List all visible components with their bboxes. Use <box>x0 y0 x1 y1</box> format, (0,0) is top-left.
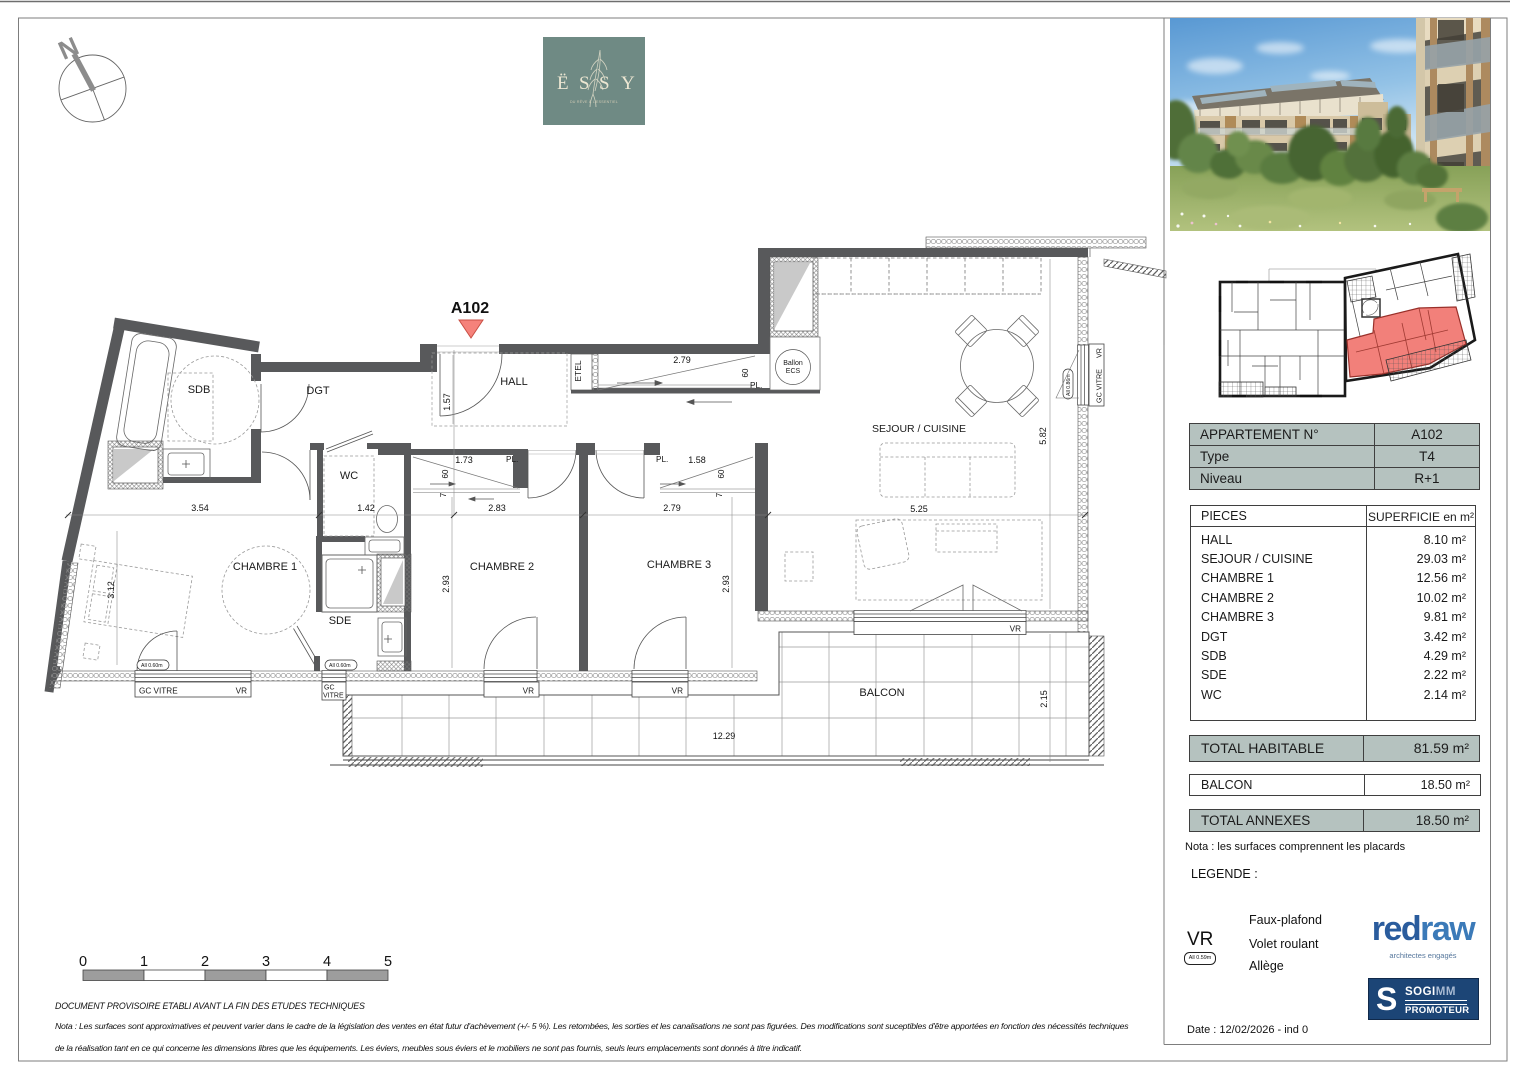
svg-text:5.82: 5.82 <box>1038 427 1048 445</box>
svg-text:SDE: SDE <box>329 615 352 627</box>
svg-text:WC: WC <box>340 470 358 482</box>
svg-text:0: 0 <box>79 954 87 970</box>
svg-text:4: 4 <box>323 954 331 970</box>
svg-text:All 0.60m: All 0.60m <box>329 663 351 669</box>
svg-text:HALL: HALL <box>500 376 528 388</box>
svg-text:Ë: Ë <box>557 73 569 94</box>
svg-text:2.93: 2.93 <box>721 575 731 593</box>
svg-text:DU RÊVE À L'ESSENTIEL: DU RÊVE À L'ESSENTIEL <box>570 99 618 104</box>
svg-text:2.93: 2.93 <box>441 575 451 593</box>
svg-text:60: 60 <box>717 469 726 478</box>
svg-text:60: 60 <box>741 368 750 377</box>
svg-text:SEJOUR / CUISINE: SEJOUR / CUISINE <box>872 423 966 435</box>
svg-text:3: 3 <box>262 954 270 970</box>
svg-text:All 0.86m: All 0.86m <box>1066 374 1072 396</box>
svg-text:1.57: 1.57 <box>442 393 452 411</box>
svg-text:PL.: PL. <box>750 381 762 390</box>
svg-text:1.42: 1.42 <box>357 503 375 513</box>
svg-text:5: 5 <box>384 954 392 970</box>
svg-text:GC VITRE: GC VITRE <box>1095 369 1104 403</box>
svg-text:3.54: 3.54 <box>191 503 209 513</box>
svg-text:S: S <box>599 73 610 94</box>
svg-text:CHAMBRE 2: CHAMBRE 2 <box>470 561 534 573</box>
svg-text:CHAMBRE 1: CHAMBRE 1 <box>233 561 297 573</box>
svg-text:GC VITRE: GC VITRE <box>139 687 178 696</box>
svg-text:A102: A102 <box>451 300 489 317</box>
svg-text:5.25: 5.25 <box>910 504 928 514</box>
svg-text:All 0.60m: All 0.60m <box>141 663 163 669</box>
svg-text:Ballon: Ballon <box>783 360 803 367</box>
svg-text:60: 60 <box>441 469 450 478</box>
svg-text:3.12: 3.12 <box>106 581 116 599</box>
svg-text:PL.: PL. <box>506 455 518 464</box>
svg-text:Y: Y <box>621 73 635 94</box>
svg-text:2.79: 2.79 <box>663 503 681 513</box>
svg-text:PL.: PL. <box>656 455 668 464</box>
svg-text:VR: VR <box>1010 625 1021 634</box>
svg-text:7: 7 <box>715 492 724 497</box>
svg-text:GC: GC <box>324 685 335 692</box>
svg-text:2.15: 2.15 <box>1039 690 1049 708</box>
svg-text:BALCON: BALCON <box>859 687 904 699</box>
svg-text:VITRE: VITRE <box>323 693 344 700</box>
svg-text:DGT: DGT <box>306 385 330 397</box>
svg-text:2.79: 2.79 <box>673 355 691 365</box>
svg-text:CHAMBRE 3: CHAMBRE 3 <box>647 559 711 571</box>
svg-text:1.73: 1.73 <box>455 455 473 465</box>
svg-text:SDB: SDB <box>188 384 211 396</box>
svg-text:VR: VR <box>523 687 534 696</box>
svg-text:ETEL: ETEL <box>573 360 583 382</box>
svg-text:1: 1 <box>140 954 148 970</box>
svg-text:VR: VR <box>1095 348 1104 358</box>
svg-text:1.58: 1.58 <box>688 455 706 465</box>
svg-text:ECS: ECS <box>786 368 801 375</box>
svg-text:S: S <box>579 73 590 94</box>
svg-text:7: 7 <box>439 492 448 497</box>
svg-text:VR: VR <box>236 687 247 696</box>
svg-text:VR: VR <box>672 687 683 696</box>
svg-text:2.83: 2.83 <box>488 503 506 513</box>
svg-text:12.29: 12.29 <box>713 731 736 741</box>
svg-text:2: 2 <box>201 954 209 970</box>
